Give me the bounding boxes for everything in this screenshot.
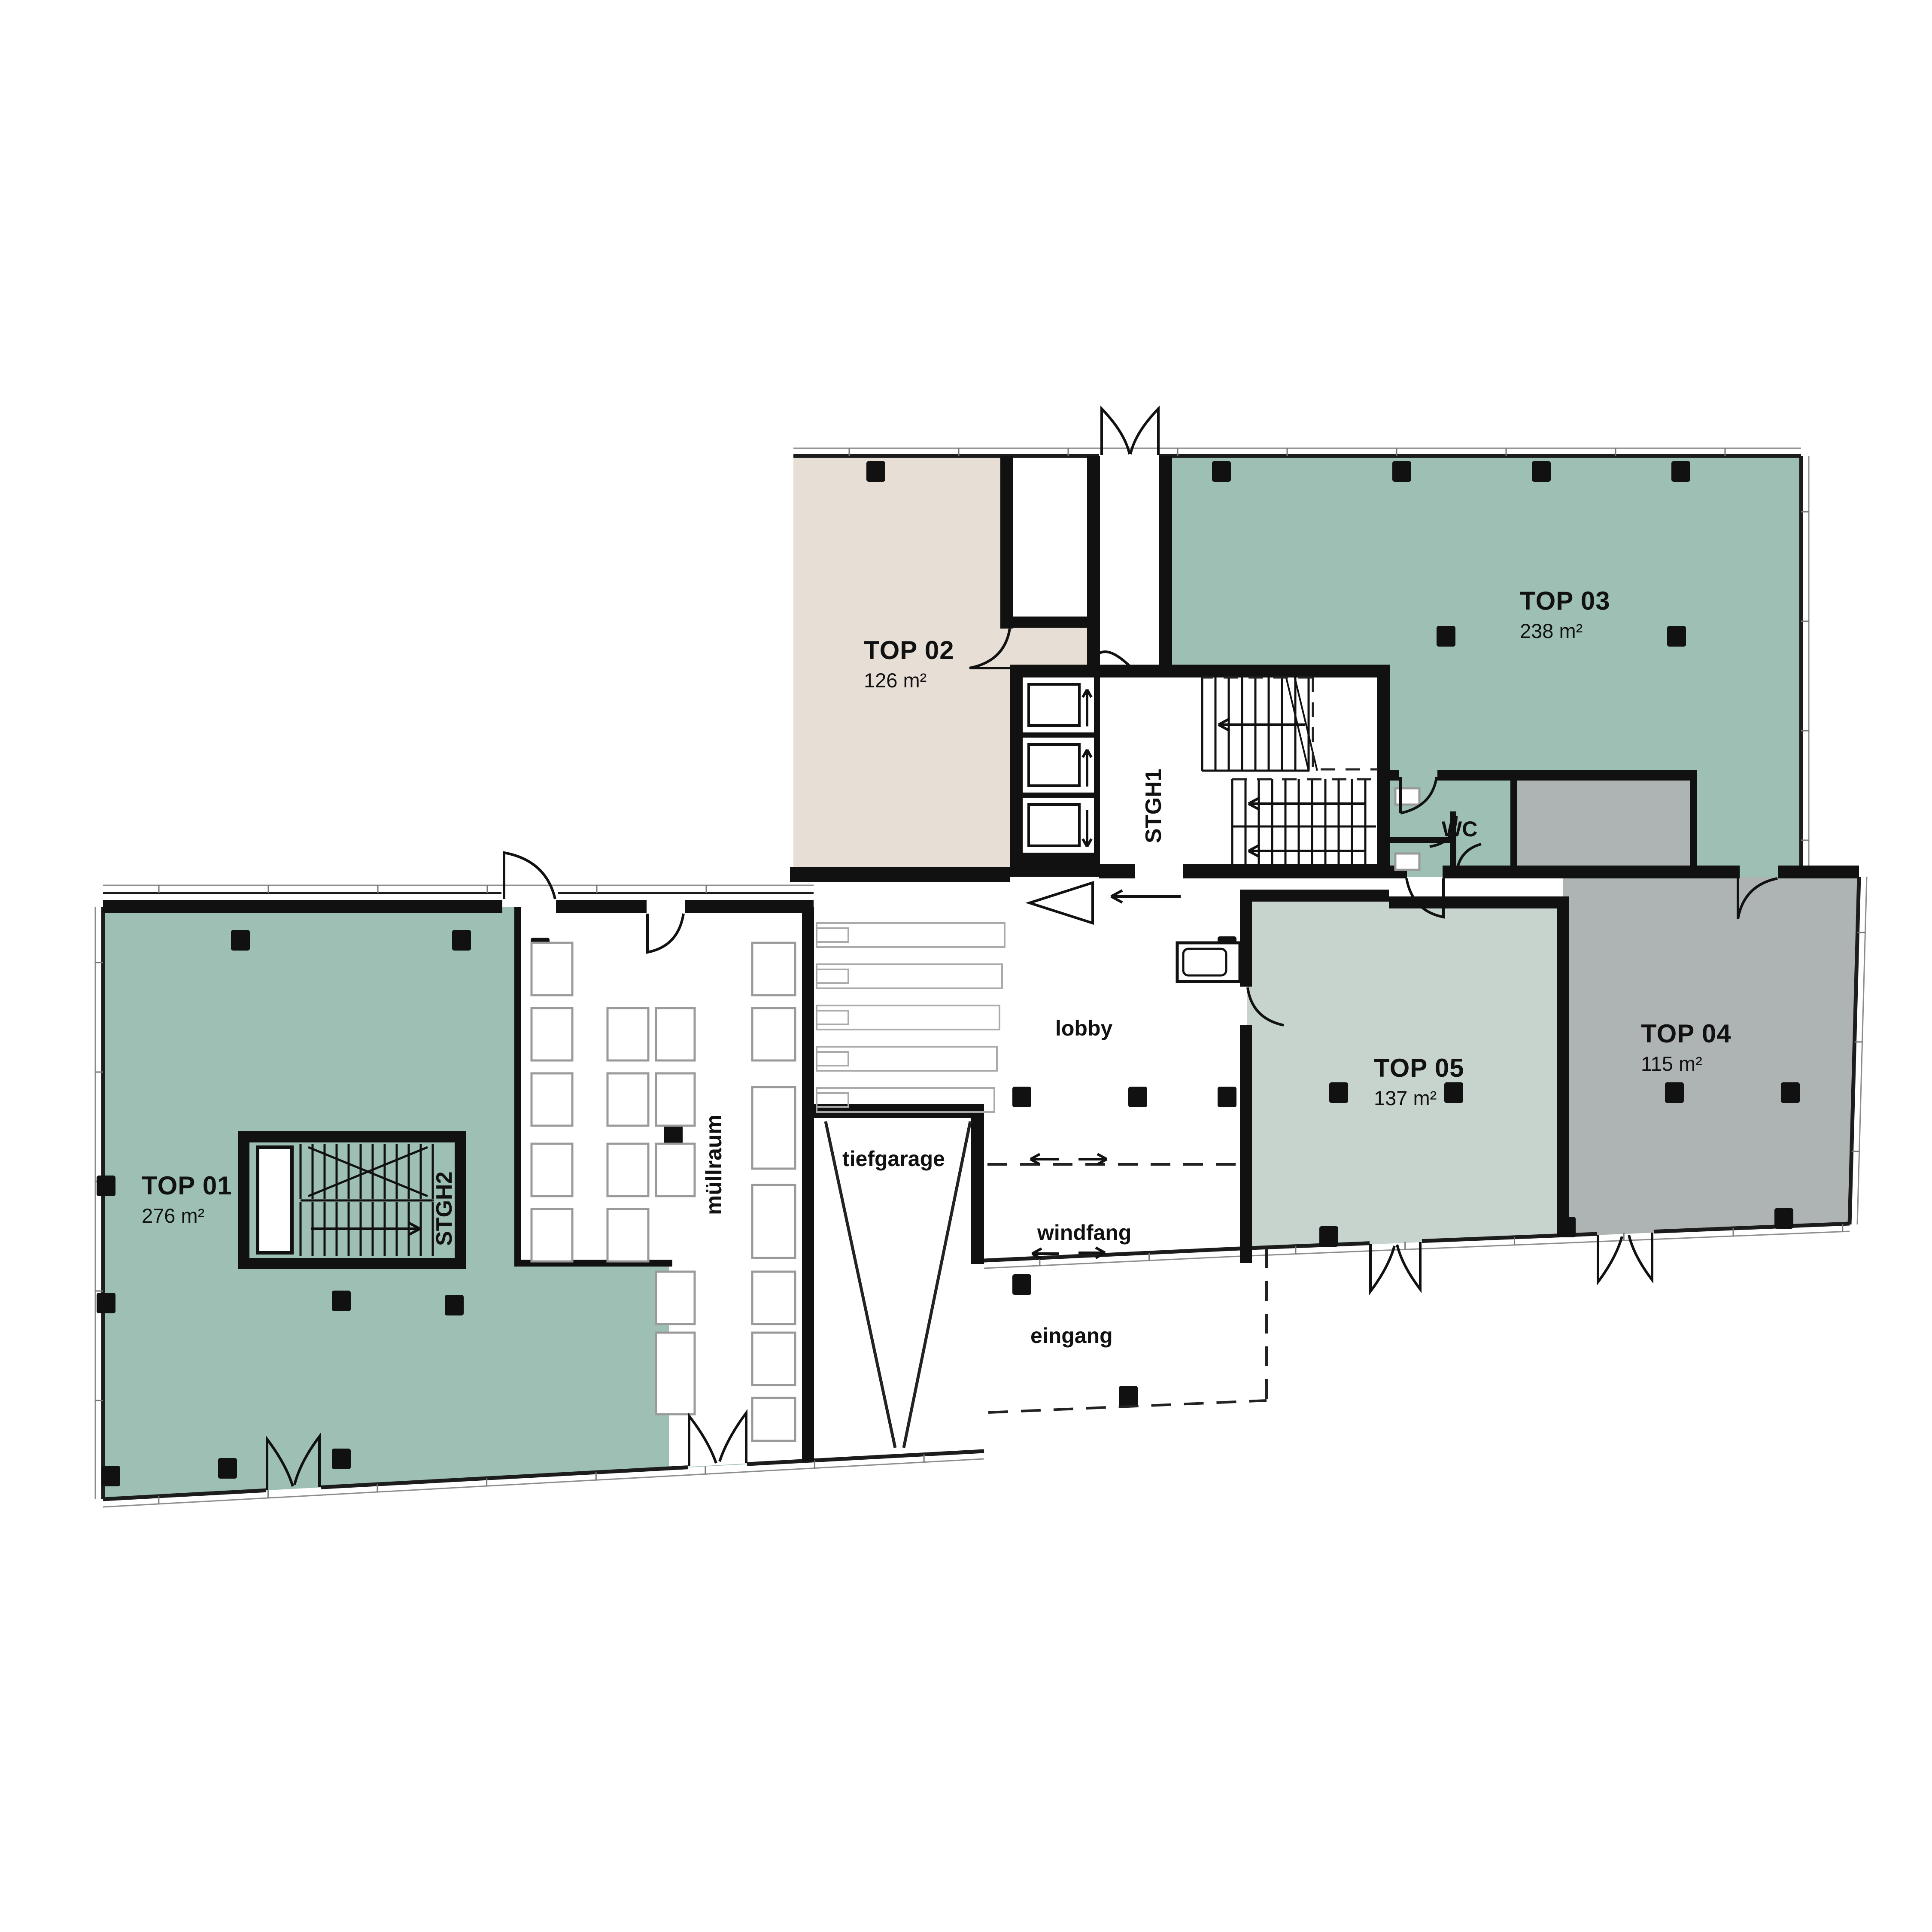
lobby-shaft [1177,943,1240,981]
room-label-stgh2: STGH2 [432,1172,457,1246]
room-top02-vestibule [1010,628,1088,669]
room-label-windfang: windfang [1037,1221,1131,1245]
unit-area-top02: 126 m² [864,669,927,692]
room-top04[interactable] [1563,877,1859,1236]
elevator-icon [1023,677,1094,732]
unit-label-top02[interactable]: TOP 02 [864,636,954,665]
room-label-tiefgarage: tiefgarage [842,1147,945,1171]
unit-label-top05[interactable]: TOP 05 [1374,1054,1464,1082]
unit-area-top05: 137 m² [1374,1087,1437,1109]
room-label-muellraum: müllraum [702,1115,726,1215]
unit-label-top04[interactable]: TOP 04 [1641,1019,1732,1048]
elevator-icon [1023,798,1094,853]
door-triangle-icon [1030,883,1093,923]
door [504,853,555,899]
floor-plan-page: TOP 01 276 m² TOP 02 126 m² TOP 03 238 m… [0,0,1932,1932]
room-label-lobby: lobby [1055,1016,1113,1040]
unit-area-top03: 238 m² [1520,620,1583,642]
rack-rows [817,923,1005,1112]
floor-plan-drawing: TOP 01 276 m² TOP 02 126 m² TOP 03 238 m… [0,0,1932,1932]
unit-label-top03[interactable]: TOP 03 [1520,586,1610,615]
shaft [258,1147,292,1253]
unit-area-top04: 115 m² [1641,1052,1702,1075]
stairs-stgh1 [1202,676,1376,874]
room-label-wc: WC [1442,817,1477,841]
room-top04-upper[interactable] [1516,775,1697,877]
unit-area-top01: 276 m² [142,1204,204,1227]
room-label-stgh1: STGH1 [1141,769,1166,843]
room-label-eingang: eingang [1030,1324,1113,1348]
elevator-icon [1023,738,1094,793]
unit-label-top01[interactable]: TOP 01 [142,1171,232,1200]
